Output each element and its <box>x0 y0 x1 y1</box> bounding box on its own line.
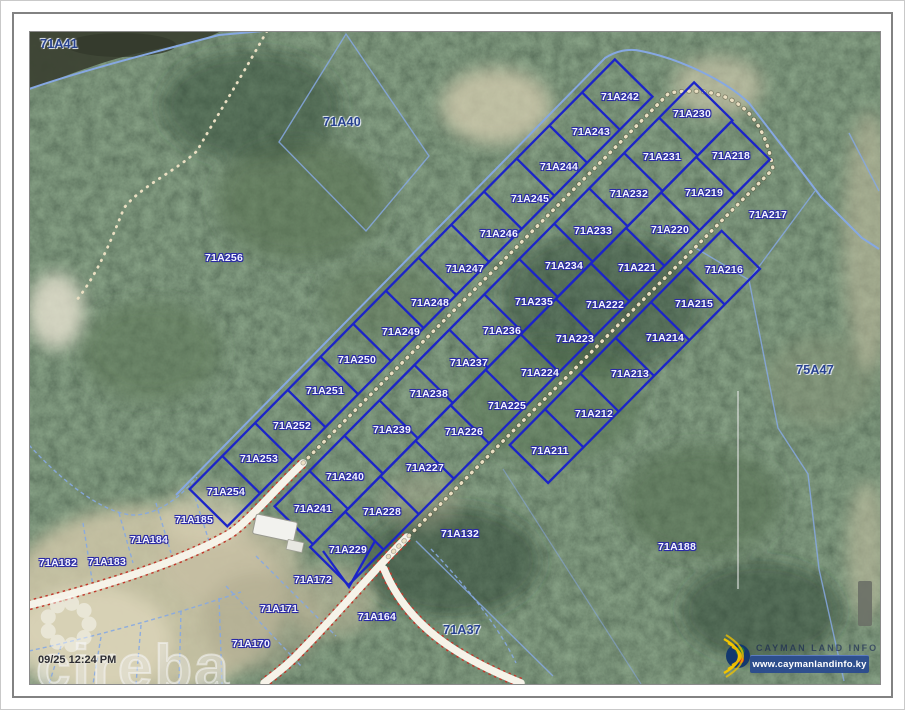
report-page: { "document": { "timestamp": "09/25 12:2… <box>0 0 905 710</box>
map-canvas[interactable]: 71A4171A4071A25671A24271A23071A24371A231… <box>29 31 881 685</box>
satellite-terrain <box>29 31 881 685</box>
gray-structure <box>858 581 872 626</box>
